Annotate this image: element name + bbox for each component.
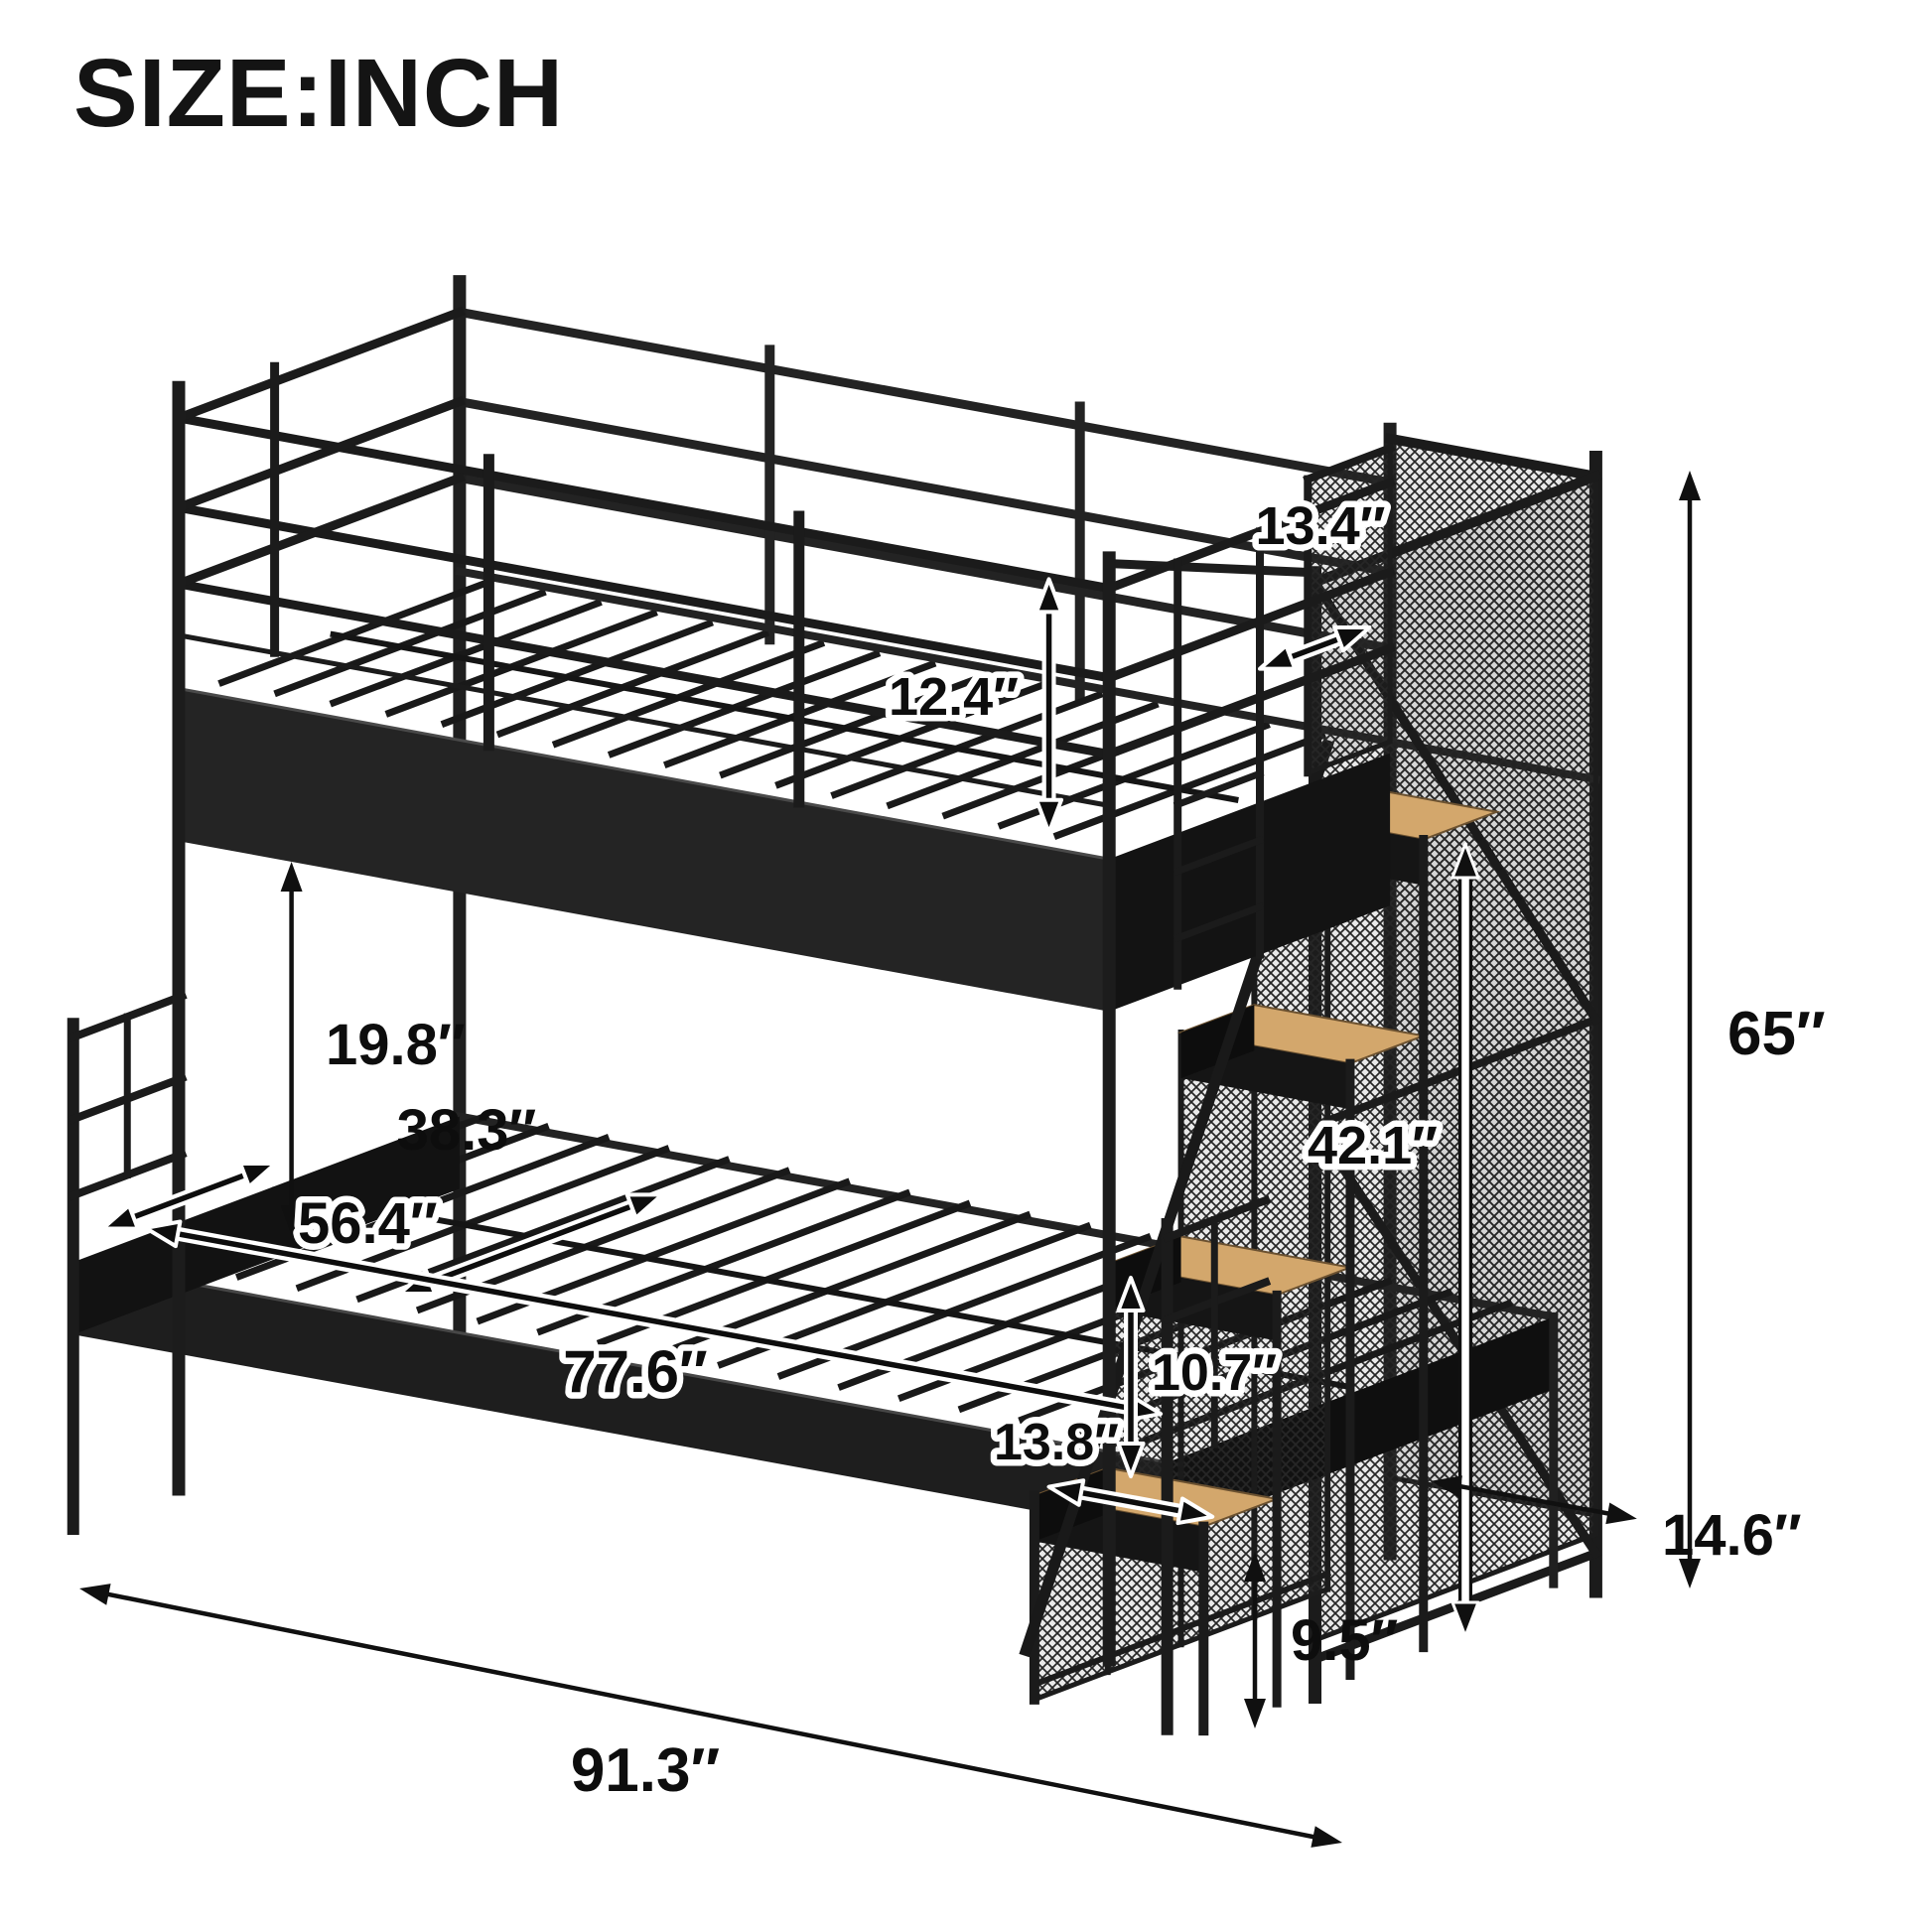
dim-label-upper-bed-width: 38.3″: [397, 1098, 537, 1163]
dim-label-bunk-gap-height: 19.8″: [326, 1013, 466, 1077]
dim-label-lower-bed-length: 77.6″: [563, 1338, 708, 1405]
dim-label-step-length: 13.8″: [994, 1414, 1119, 1471]
dim-arrow-overall-height: [1679, 471, 1701, 1588]
dim-label-staircase-depth: 14.6″: [1662, 1503, 1802, 1568]
dim-label-leg-height: 9.5″: [1291, 1608, 1398, 1673]
bunk-bed-diagram: 19.8″38.3″56.4″77.6″91.3″65″12.4″13.4″42…: [0, 0, 1932, 1932]
dim-label-overall-length: 91.3″: [571, 1736, 720, 1805]
dim-label-staircase-height: 42.1″: [1308, 1116, 1438, 1175]
dim-arrow-leg-height: [1244, 1552, 1266, 1728]
dimension-diagram-page: SIZE:INCH 19.8″38.3″56.4″77.6″91.3″65″12…: [0, 0, 1932, 1932]
dim-label-overall-height: 65″: [1727, 1000, 1826, 1068]
dim-label-step-rise: 10.7″: [1152, 1344, 1277, 1402]
dim-label-guardrail-height: 12.4″: [889, 667, 1019, 727]
dim-label-lower-bed-width: 56.4″: [298, 1191, 438, 1256]
dim-label-upper-bed-entry-width: 13.4″: [1256, 496, 1386, 556]
